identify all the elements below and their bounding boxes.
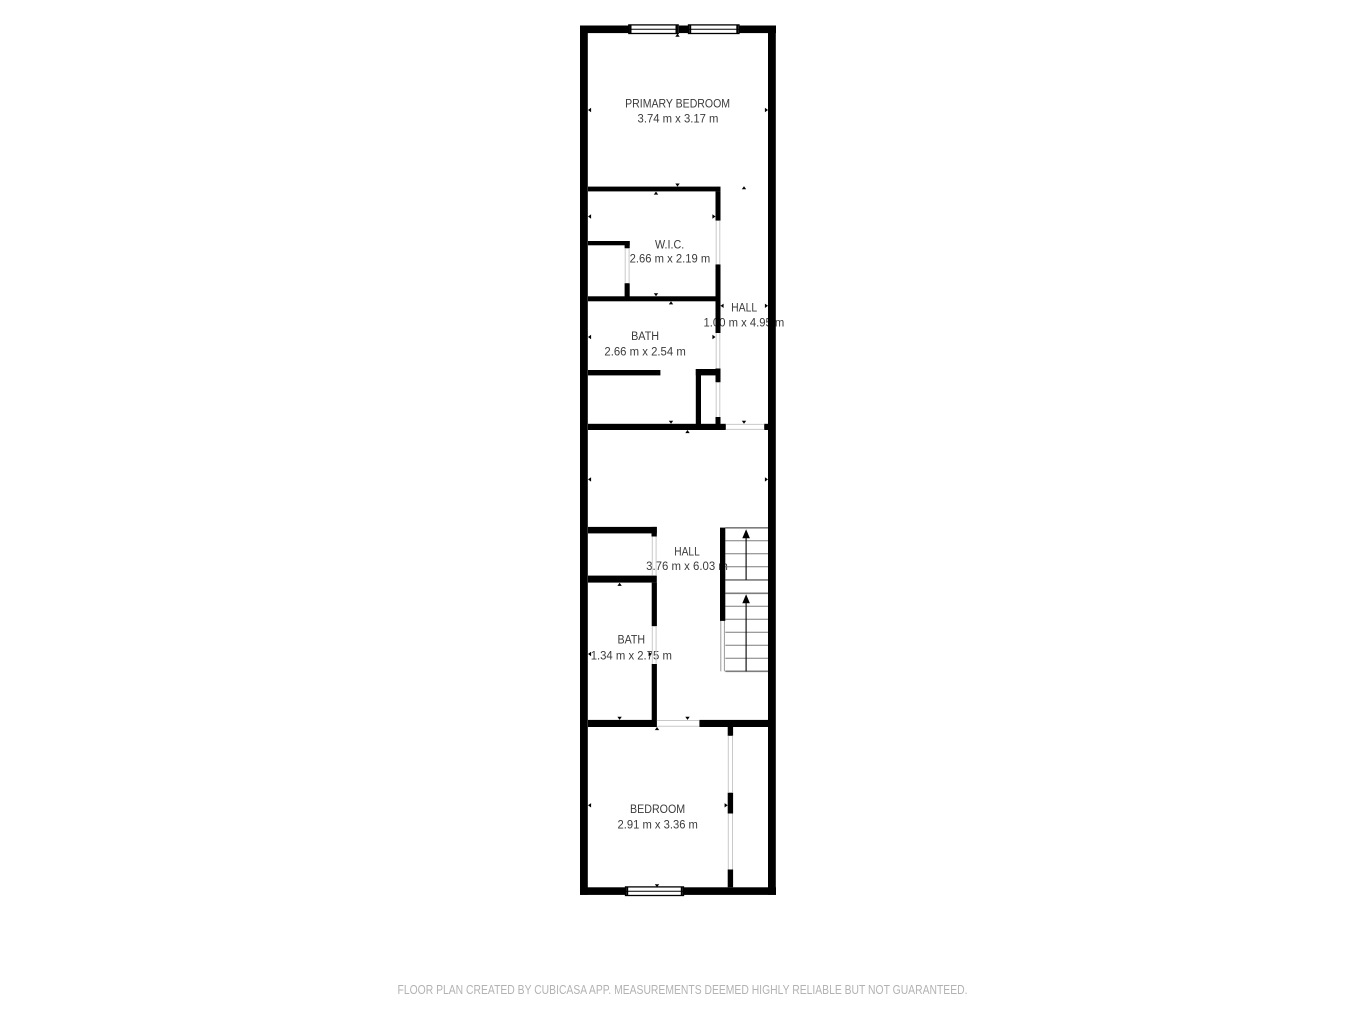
svg-text:3.74 m x 3.17 m: 3.74 m x 3.17 m xyxy=(638,112,719,126)
svg-text:PRIMARY BEDROOM: PRIMARY BEDROOM xyxy=(625,97,730,111)
svg-text:FLOOR PLAN CREATED BY CUBICASA: FLOOR PLAN CREATED BY CUBICASA APP. MEAS… xyxy=(398,983,968,997)
svg-text:HALL: HALL xyxy=(674,545,700,559)
svg-text:3.76 m x 6.03 m: 3.76 m x 6.03 m xyxy=(646,559,728,573)
svg-text:W.I.C.: W.I.C. xyxy=(655,237,684,251)
svg-text:HALL: HALL xyxy=(731,301,757,315)
svg-text:BATH: BATH xyxy=(631,329,659,343)
svg-text:BEDROOM: BEDROOM xyxy=(630,802,685,816)
svg-text:2.66 m x 2.54 m: 2.66 m x 2.54 m xyxy=(604,345,685,359)
svg-text:1.34 m x 2.75 m: 1.34 m x 2.75 m xyxy=(591,648,672,662)
svg-text:2.91 m x 3.36 m: 2.91 m x 3.36 m xyxy=(618,817,698,831)
svg-text:2.66 m x 2.19 m: 2.66 m x 2.19 m xyxy=(630,252,711,266)
svg-text:BATH: BATH xyxy=(618,633,646,647)
